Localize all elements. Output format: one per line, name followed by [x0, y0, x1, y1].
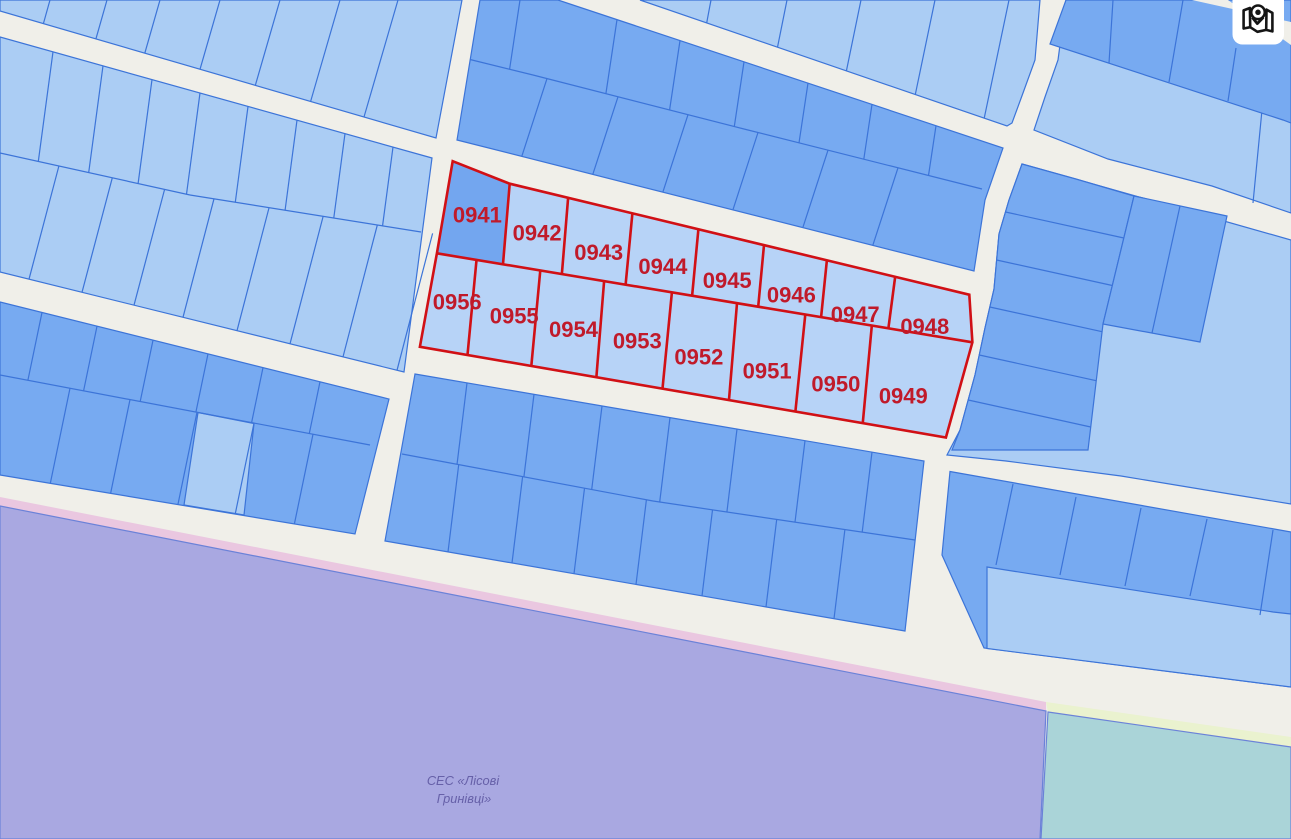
svg-text:0947: 0947: [831, 302, 880, 327]
svg-text:0945: 0945: [703, 268, 752, 293]
svg-text:0952: 0952: [674, 345, 723, 370]
svg-text:0953: 0953: [613, 328, 662, 353]
svg-text:0944: 0944: [638, 254, 688, 279]
svg-text:0941: 0941: [453, 203, 502, 228]
svg-text:0942: 0942: [513, 221, 562, 246]
svg-text:0956: 0956: [433, 289, 482, 314]
svg-text:0954: 0954: [549, 317, 599, 342]
svg-text:0950: 0950: [811, 372, 860, 397]
svg-text:0951: 0951: [743, 359, 792, 384]
svg-text:0955: 0955: [490, 303, 539, 328]
svg-text:Гринівці»: Гринівці»: [437, 791, 491, 806]
svg-text:0948: 0948: [900, 314, 949, 339]
svg-text:СЕС «Лісові: СЕС «Лісові: [427, 773, 501, 788]
svg-text:0943: 0943: [574, 240, 623, 265]
svg-text:0946: 0946: [767, 283, 816, 308]
svg-text:0949: 0949: [879, 384, 928, 409]
